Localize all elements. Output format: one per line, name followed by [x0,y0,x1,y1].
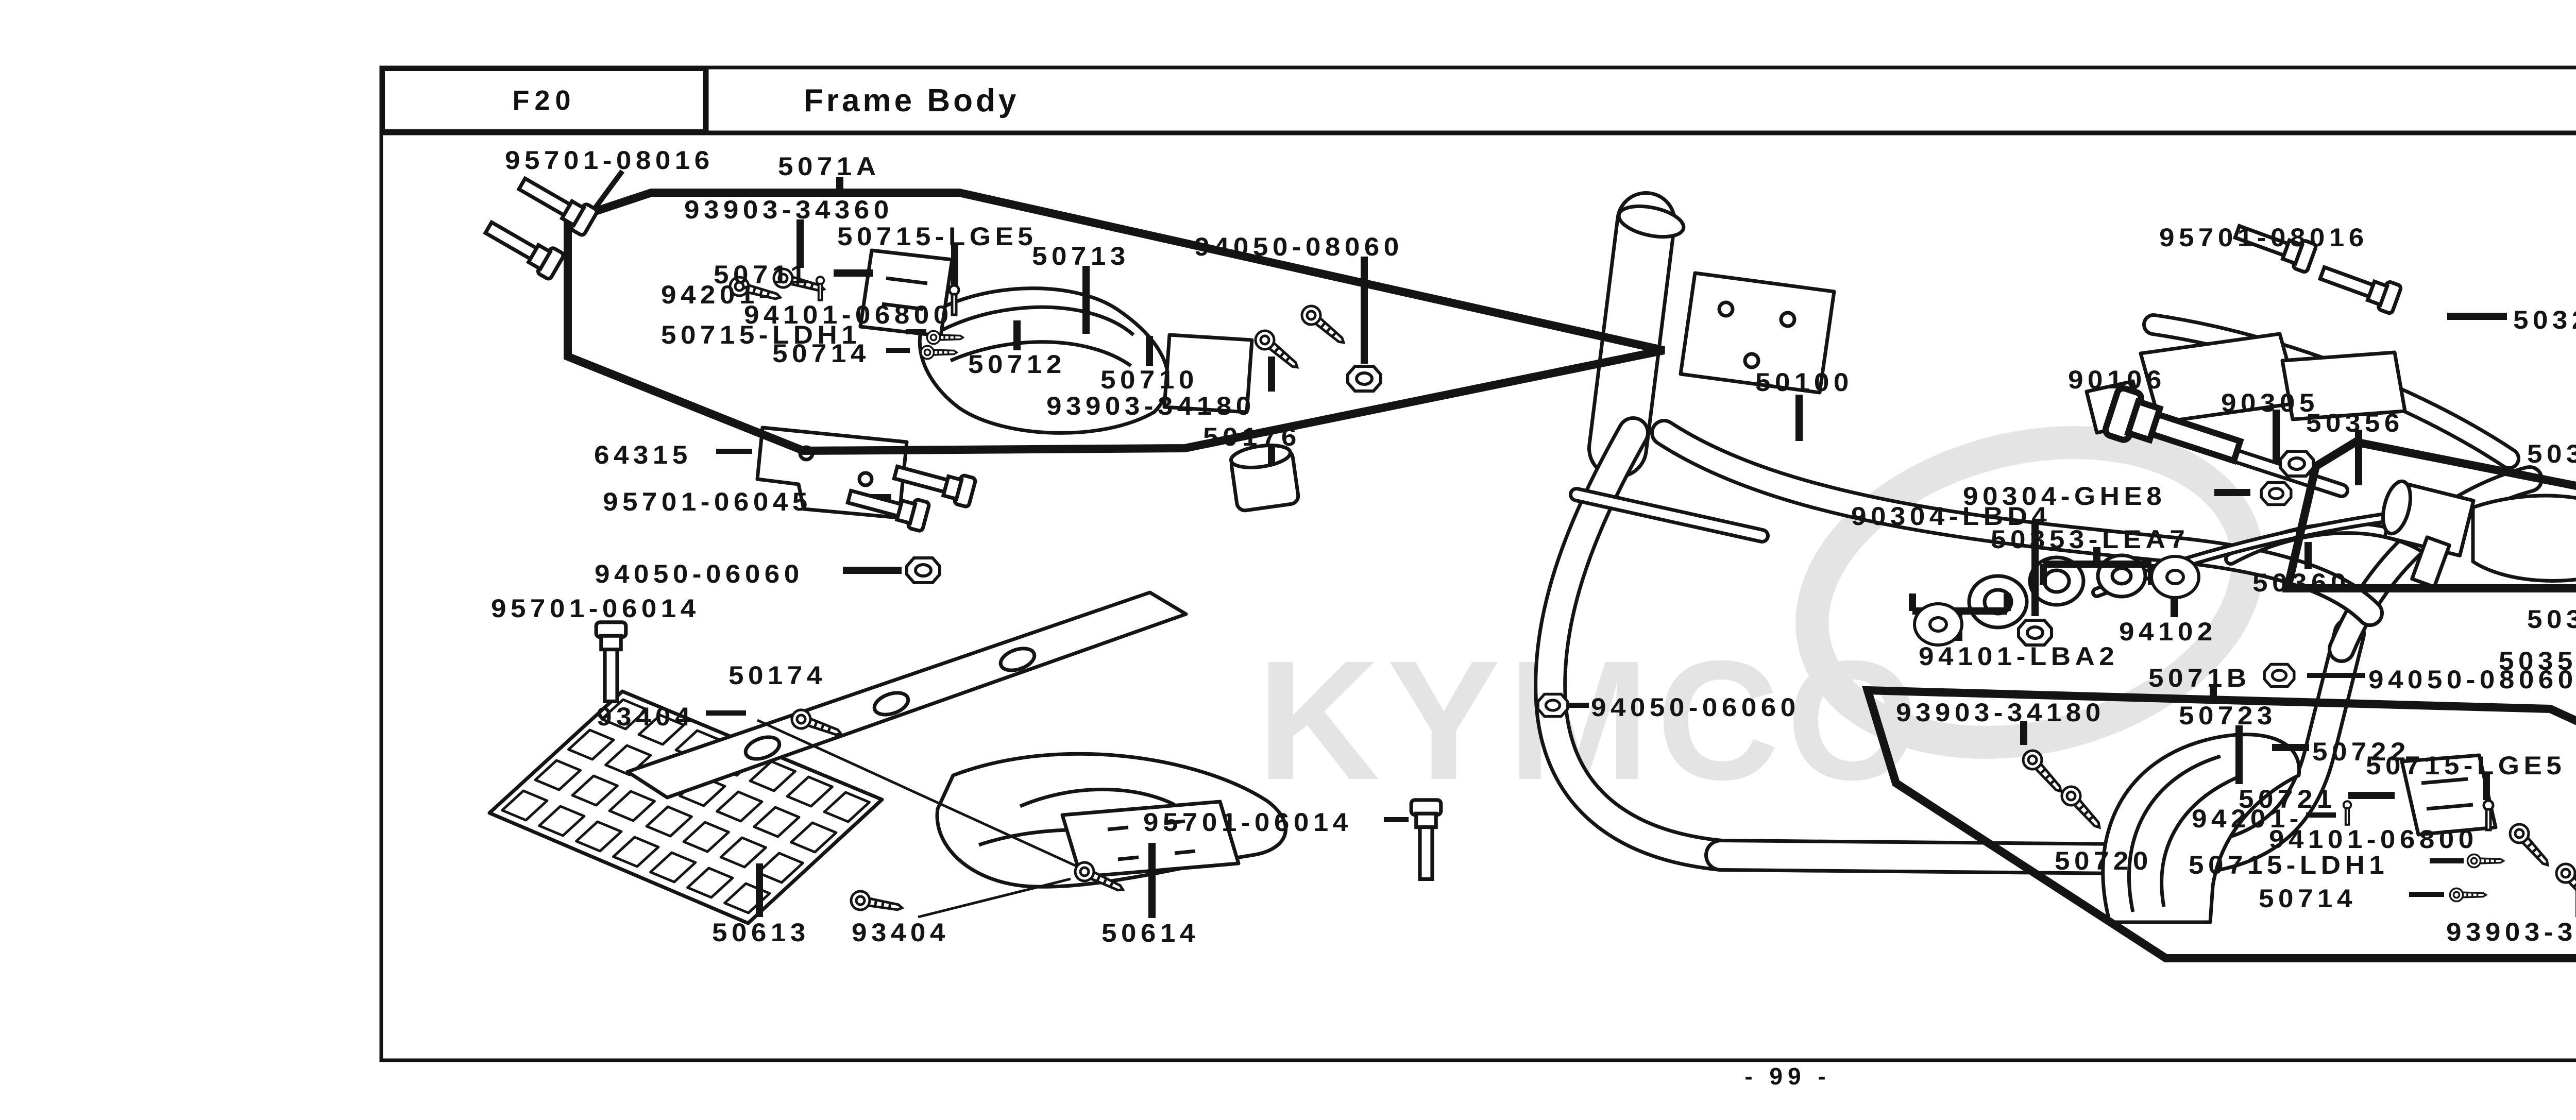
pin-icon [2484,801,2493,830]
part-number-label: 95701-08016 [2159,225,2368,250]
part-number-label: 64315 [594,442,692,468]
nut-icon [2019,620,2052,645]
part-number-label: 50350 [2527,441,2576,467]
part-number-label: 90106 [2068,367,2166,393]
part-number-label: 50723 [2179,703,2277,728]
pin-icon [2344,801,2351,825]
part-number-label: 50720 [2055,848,2153,874]
part-number-label: 93903-34360 [2446,919,2576,945]
screw-icon [2020,747,2068,797]
bolt-icon [481,215,565,280]
screw-icon [1298,302,1350,350]
part-number-label: 50613 [712,920,810,945]
screw-icon [1252,327,1303,375]
part-number-label: 50176 [1203,424,1301,450]
page-title: Frame Body [804,82,1019,119]
part-number-label: 50715-LGE5 [837,224,1037,249]
parts-diagram: KYMCO [0,0,2576,1120]
part-number-label: 50712 [968,351,1066,377]
part-number-label: 50174 [728,663,826,688]
part-number-label: 95701-06014 [1143,809,1352,835]
bolt-icon [2317,259,2402,314]
bolt-icon [596,622,626,702]
section-code-box: F20 [381,67,707,133]
page-number: - 99 - [1695,1062,1880,1090]
part-number-label: 93404 [597,704,694,729]
part-number-label: 50353-LEA7 [1991,527,2189,552]
screw-icon [2467,854,2503,867]
bolt-icon [1411,800,1441,879]
screw-icon [850,890,904,917]
part-number-label: 5071B [2148,665,2251,691]
nut-icon [2261,482,2291,504]
part-number-label: 94101-LBA2 [1919,643,2119,669]
part-number-label: 50714 [772,341,870,366]
nut-icon [1538,694,1568,716]
part-number-label: 95701-06045 [603,489,812,515]
washer-icon [1914,604,1962,645]
section-code: F20 [512,84,575,116]
nut-icon [2280,451,2313,476]
part-number-label: 94050-06060 [1591,694,1800,720]
part-number-label: 50710 [1100,367,1198,393]
nut-icon [2264,664,2294,686]
part-number-label: 93903-34180 [1046,393,1256,419]
leader-line [918,879,1071,917]
part-number-label: 93903-34360 [684,197,893,223]
part-number-label: 93404 [852,920,950,945]
part-number-label: 50356 [2306,410,2404,436]
canister-50176 [1230,442,1299,512]
part-number-label: 50100 [1755,369,1853,395]
part-number-label: 94050-08060 [2368,667,2576,692]
screw-icon [2553,860,2576,911]
screw-icon [2450,888,2486,901]
part-number-label: 5071A [778,154,880,179]
nut-icon [907,558,940,583]
part-number-label: 94050-06060 [595,561,804,587]
part-number-label: 50364 [2527,606,2576,632]
screw-icon [2506,821,2555,871]
part-number-label: 50714 [2259,886,2357,911]
pin-icon [817,277,824,300]
nut-icon [1348,366,1381,391]
part-number-label: 93903-34180 [1896,700,2105,725]
part-number-label: 94101-06800 [2269,826,2478,852]
catalog-page: KYMCO [0,0,2576,1120]
part-number-label: 50614 [1101,920,1199,946]
part-number-label: 90305 [2221,390,2319,416]
part-number-label: 50713 [1032,243,1130,269]
part-number-label: 50715-LGE5 [2366,753,2566,778]
part-number-label: 95701-08016 [505,147,714,173]
part-number-label: 50360 [2252,570,2350,596]
bolt-icon [515,171,598,236]
screw-icon [2058,783,2107,834]
part-number-label: 95701-06014 [491,596,700,621]
washer-icon [2151,556,2199,598]
part-number-label: 50320 [2513,307,2576,333]
part-number-label: 94050-08060 [1194,234,1403,260]
part-number-label: 94102 [2119,619,2217,644]
brand-watermark: KYMCO [1257,399,2280,815]
part-number-label: 50715-LDH1 [2189,852,2388,878]
